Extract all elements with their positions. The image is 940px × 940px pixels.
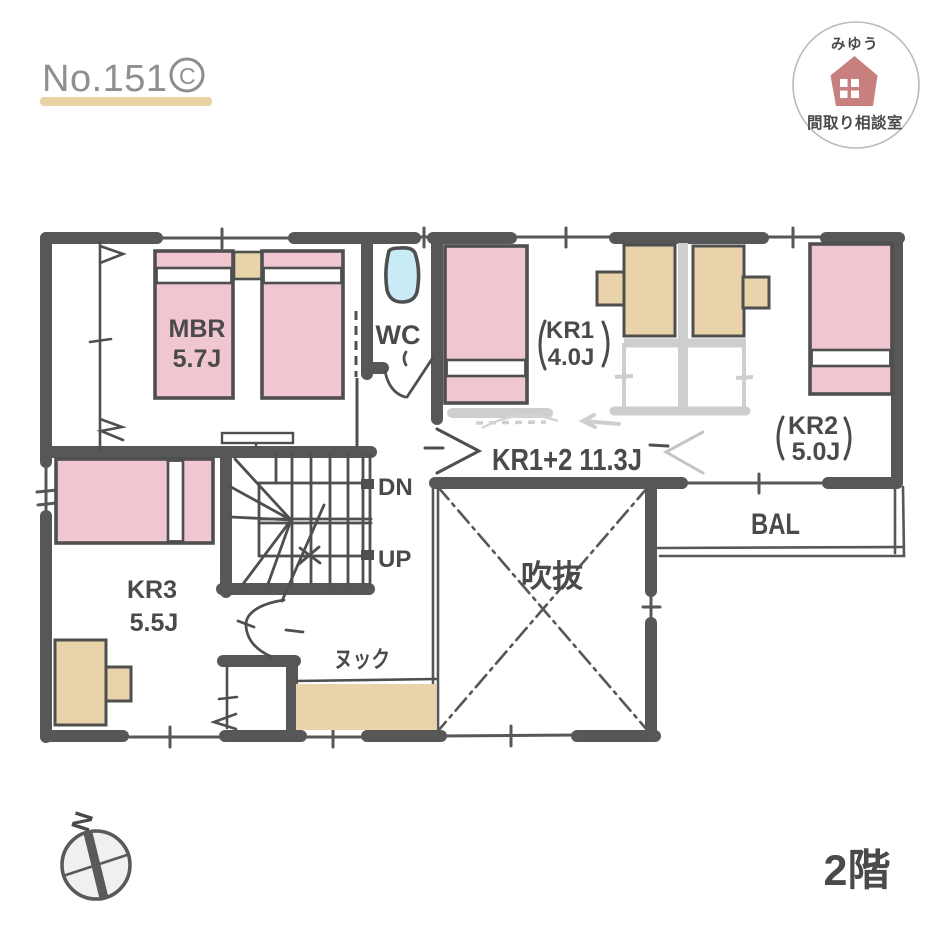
svg-text:UP: UP — [378, 546, 411, 573]
svg-text:MBR: MBR — [169, 315, 226, 343]
svg-text:BAL: BAL — [751, 508, 800, 541]
svg-text:みゆう: みゆう — [831, 36, 879, 53]
svg-text:5.7J: 5.7J — [173, 345, 222, 373]
svg-text:5.5J: 5.5J — [130, 609, 179, 637]
svg-text:WC: WC — [376, 320, 421, 350]
svg-text:KR1+2 11.3J: KR1+2 11.3J — [492, 442, 642, 477]
svg-text:ヌック: ヌック — [334, 646, 390, 672]
svg-text:5.0J: 5.0J — [792, 438, 841, 466]
svg-text:DN: DN — [378, 474, 413, 501]
svg-text:C: C — [179, 63, 196, 89]
svg-text:KR2: KR2 — [788, 412, 838, 440]
svg-text:間取り相談室: 間取り相談室 — [807, 113, 903, 132]
svg-text:No.151: No.151 — [42, 58, 168, 100]
svg-text:KR3: KR3 — [127, 576, 177, 604]
svg-text:吹抜: 吹抜 — [521, 559, 583, 594]
svg-text:KR1: KR1 — [546, 317, 594, 344]
svg-text:4.0J: 4.0J — [548, 344, 595, 371]
svg-text:2階: 2階 — [824, 847, 891, 895]
